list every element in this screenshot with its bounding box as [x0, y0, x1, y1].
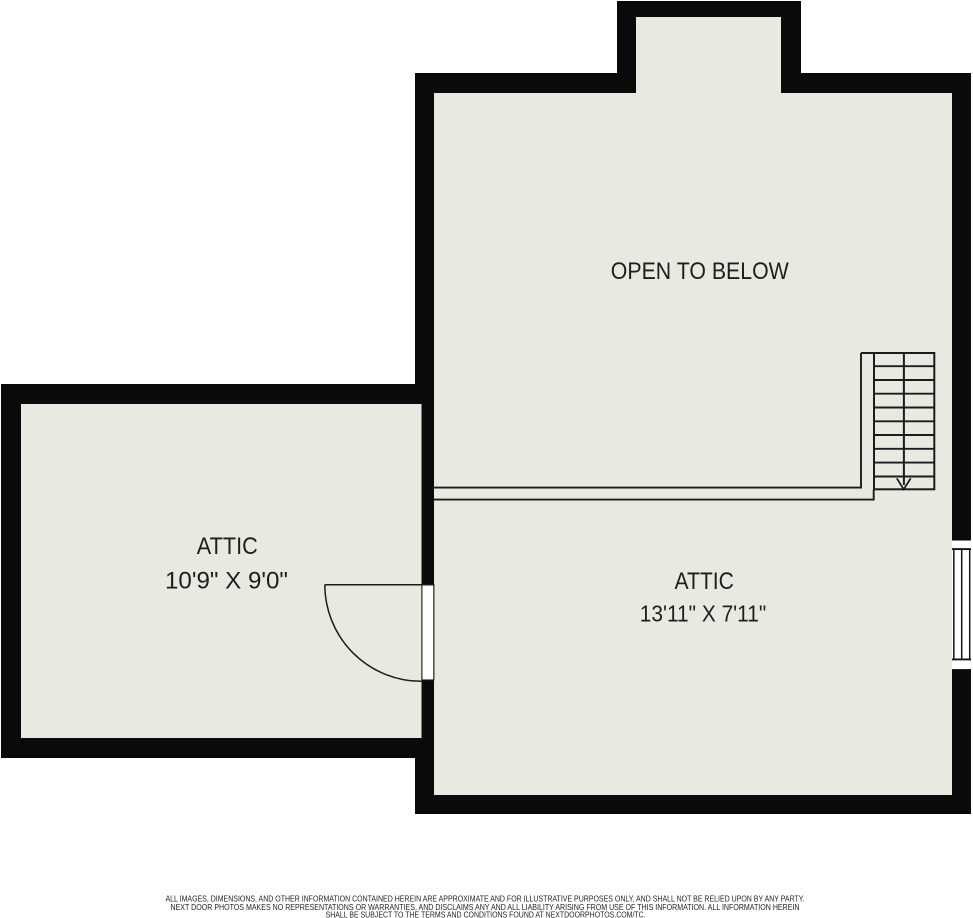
svg-text:10'9" X 9'0": 10'9" X 9'0" — [165, 567, 288, 594]
svg-text:OPEN TO BELOW: OPEN TO BELOW — [611, 258, 789, 285]
svg-text:13'11" X 7'11": 13'11" X 7'11" — [640, 600, 767, 626]
svg-text:SHALL BE SUBJECT TO THE TERMS: SHALL BE SUBJECT TO THE TERMS AND CONDIT… — [326, 910, 646, 918]
svg-text:ATTIC: ATTIC — [197, 533, 258, 560]
svg-text:ATTIC: ATTIC — [674, 568, 734, 595]
